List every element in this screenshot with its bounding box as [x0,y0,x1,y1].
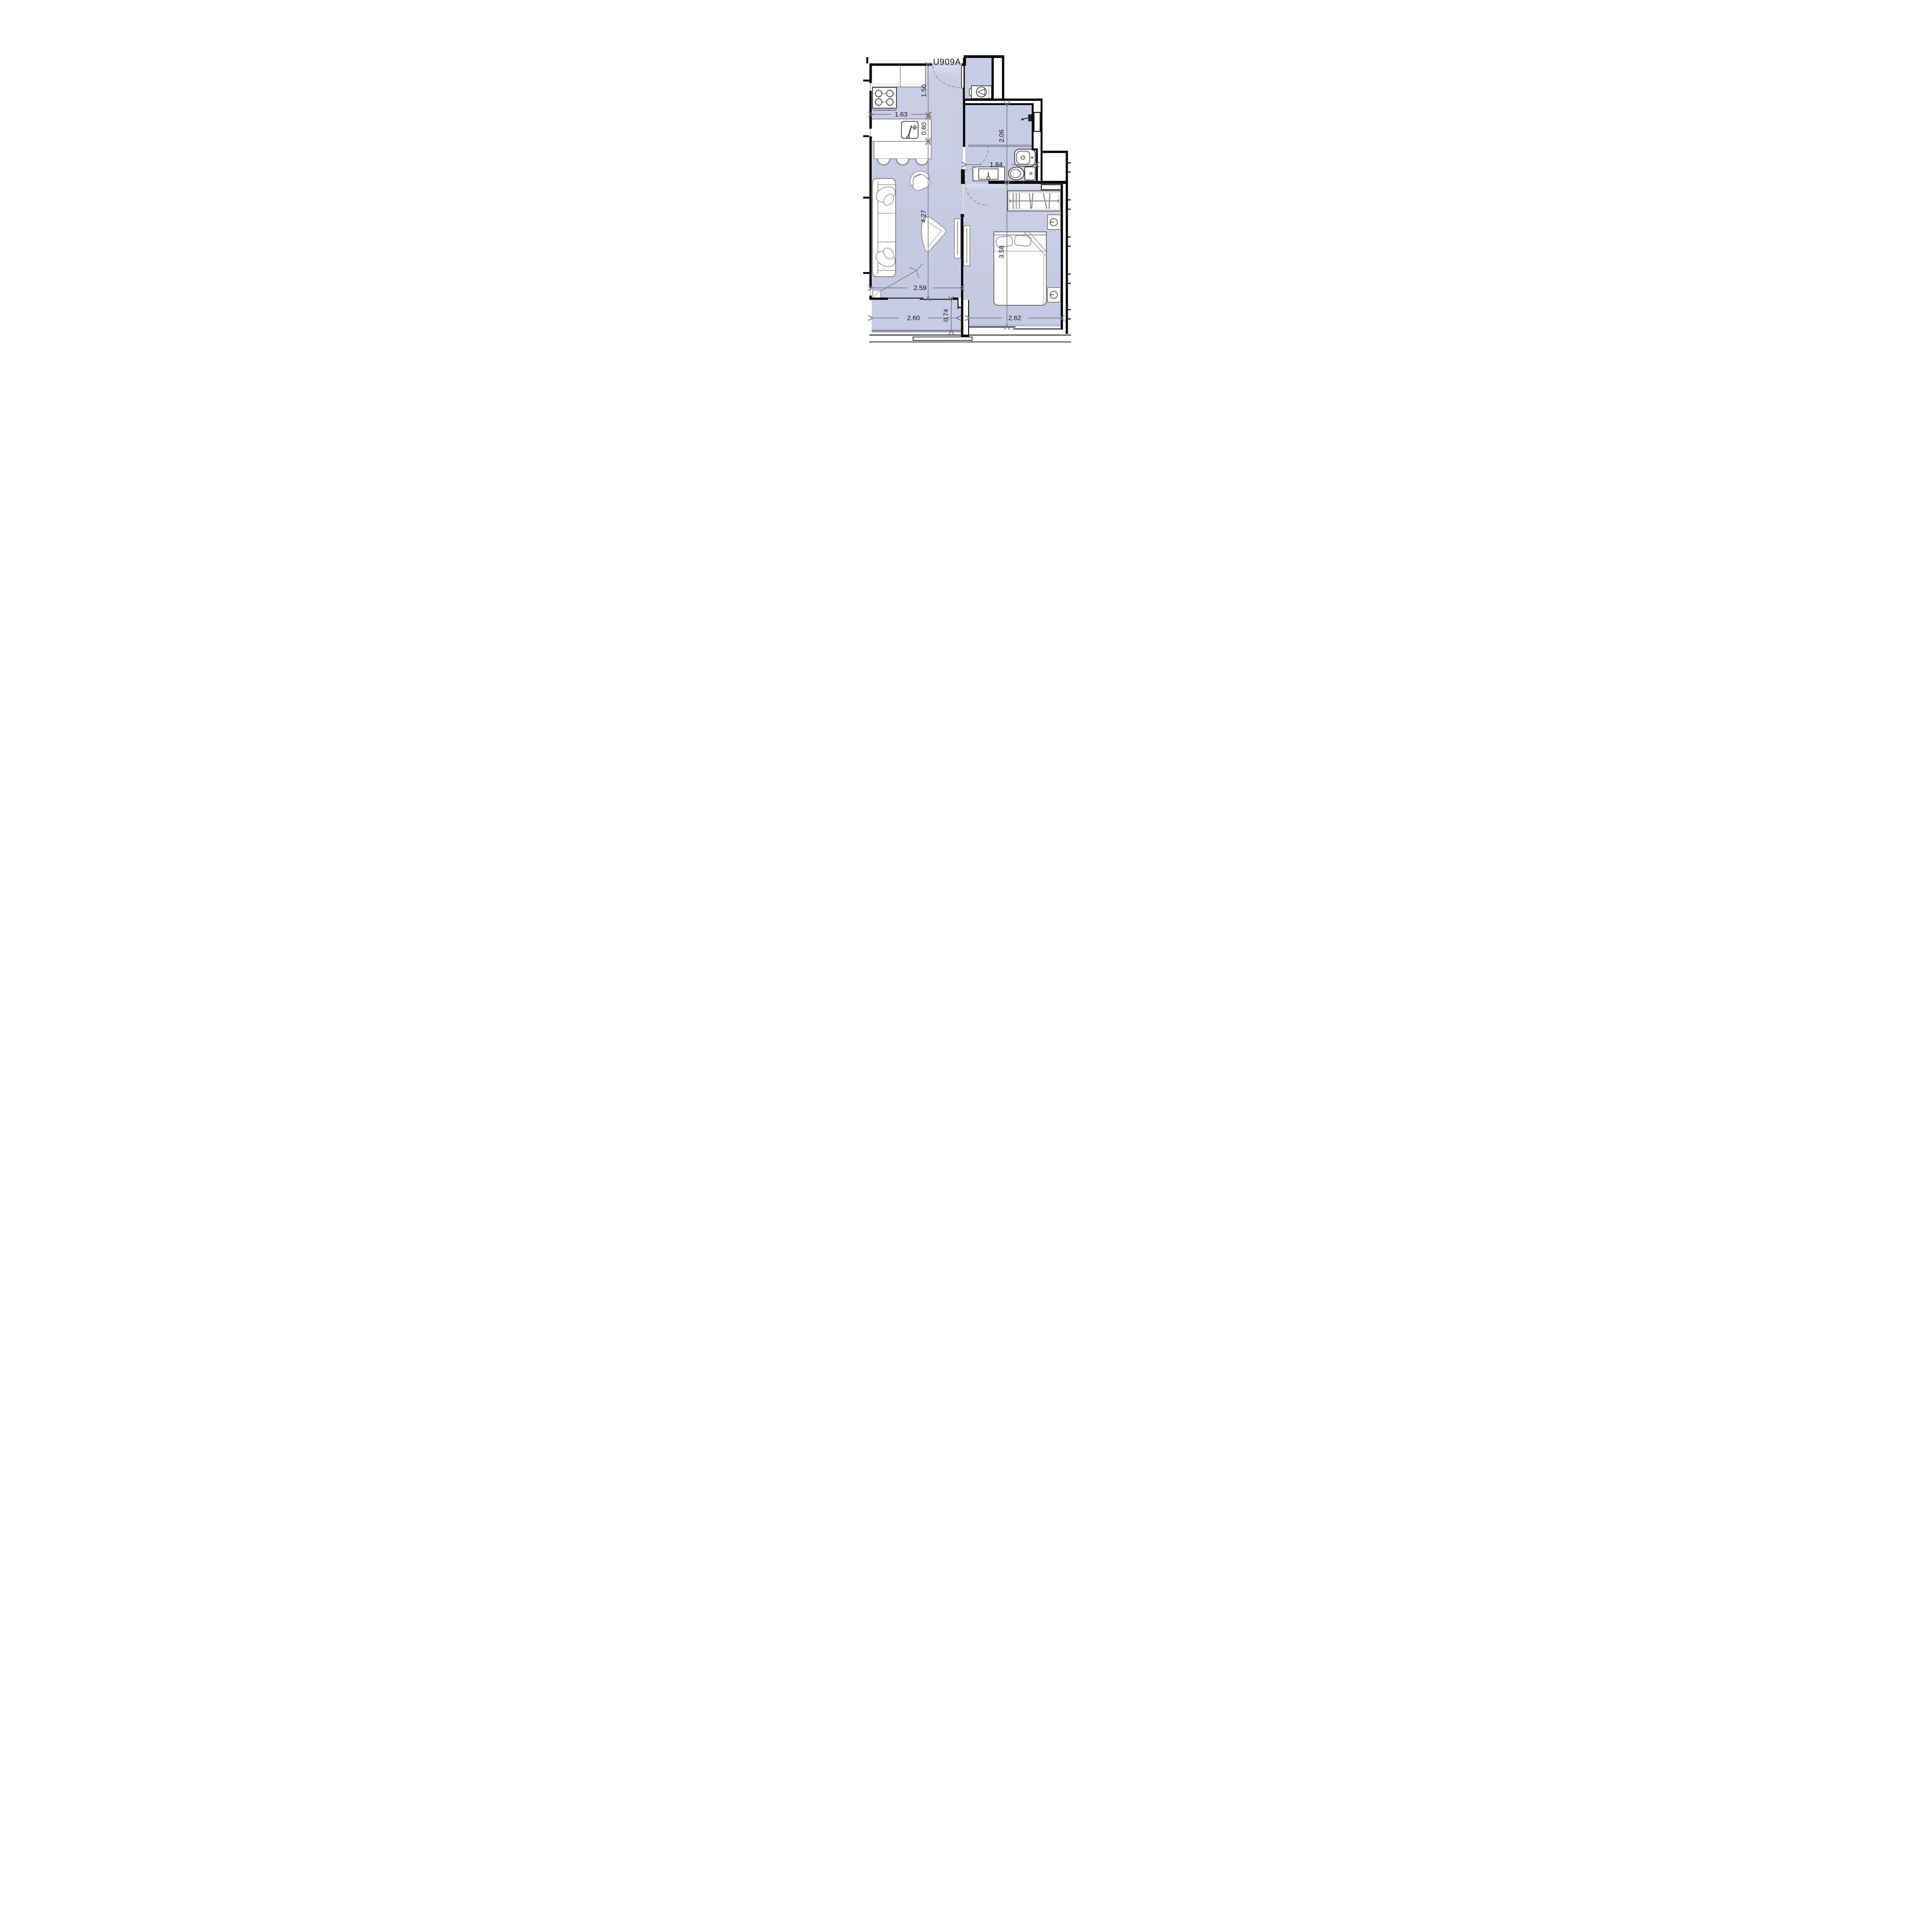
pillow [1014,235,1031,247]
dim-label-terrace-width: 2.60 [907,315,920,322]
left-exterior-wall [869,63,872,300]
bar-stools [878,159,928,165]
bathroom-top-wall [963,103,1034,105]
bed-icon [994,232,1046,305]
bathroom-left-wall [963,101,965,147]
dim-label-counter-depth: 0.60 [920,122,928,135]
unit-label: U909A [933,57,961,67]
living-bottom-wall [869,298,888,300]
dim-label-entry-depth: 1.50 [920,84,928,97]
dim-label-bedroom-length: 3.58 [998,245,1005,258]
floor-plan-page: 1.50 0.60 1.63 4.27 2.59 2.06 1.84 [773,0,1159,386]
bedroom-door-floor [964,181,988,184]
bidet-icon [1015,149,1035,166]
wall-niche [1034,112,1040,131]
dim-label-living-length: 4.27 [920,210,927,223]
floor-plan: 1.50 0.60 1.63 4.27 2.59 2.06 1.84 [773,0,1159,386]
dim-label-bedroom-width: 2.62 [1008,315,1021,322]
lower-wall-band [913,337,972,340]
bedroom-right-wall [1061,181,1063,330]
kitchen-top-wall [869,63,932,66]
laundry-bottom-wall [963,99,1004,101]
dim-label-bathroom-length: 2.06 [998,129,1005,142]
bedroom-top-wall [988,181,1066,184]
laundry-right-wall [992,58,994,99]
right-exterior-wall [1066,151,1068,334]
wardrobe-icon [1008,191,1061,211]
kitchen-cabinets [872,66,925,87]
duct-shaft [1041,185,1061,190]
nightstand-icon [1048,215,1061,230]
sofa-icon [872,179,898,277]
dim-label-bathroom-width: 1.84 [990,161,1002,168]
core-wall [1041,101,1043,181]
entry-door-leaf [962,66,964,88]
island-counter [874,141,931,159]
dim-label-living-width: 2.59 [913,284,926,292]
dim-label-kitchen-width: 1.63 [895,111,907,118]
washing-machine-icon [969,86,992,99]
living-bedroom-divider-wall [961,216,963,336]
toilet-icon [1009,167,1035,180]
nightstand-icon [1048,287,1061,302]
kitchen-sink-icon [901,121,918,138]
bathroom-right-wall [1032,103,1034,150]
washbasin-icon [973,167,1005,181]
dim-label-terrace-depth: 0.74 [942,309,950,321]
stove-icon [872,87,896,110]
